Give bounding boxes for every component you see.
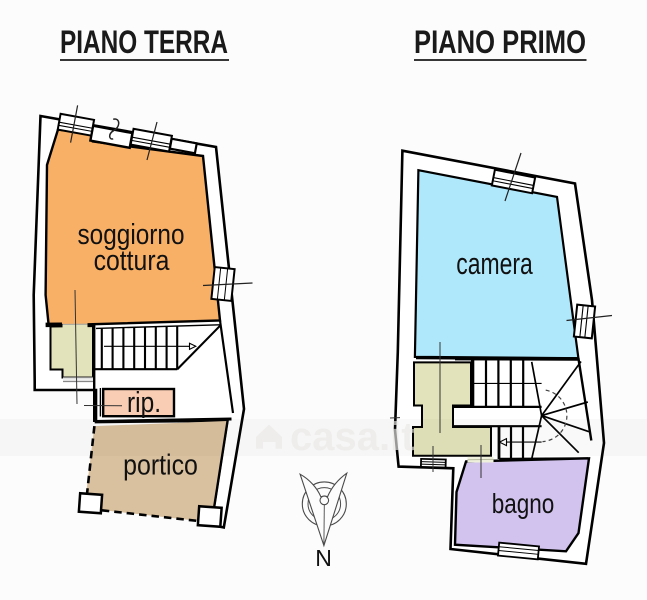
svg-text:casa.it: casa.it (290, 415, 415, 459)
svg-text:bagno: bagno (492, 488, 555, 519)
svg-text:N: N (315, 545, 332, 571)
svg-text:PIANO TERRA: PIANO TERRA (60, 24, 228, 60)
svg-text:cottura: cottura (94, 245, 171, 277)
svg-text:rip.: rip. (127, 387, 161, 419)
svg-text:PIANO PRIMO: PIANO PRIMO (414, 24, 586, 60)
svg-text:camera: camera (456, 246, 533, 281)
